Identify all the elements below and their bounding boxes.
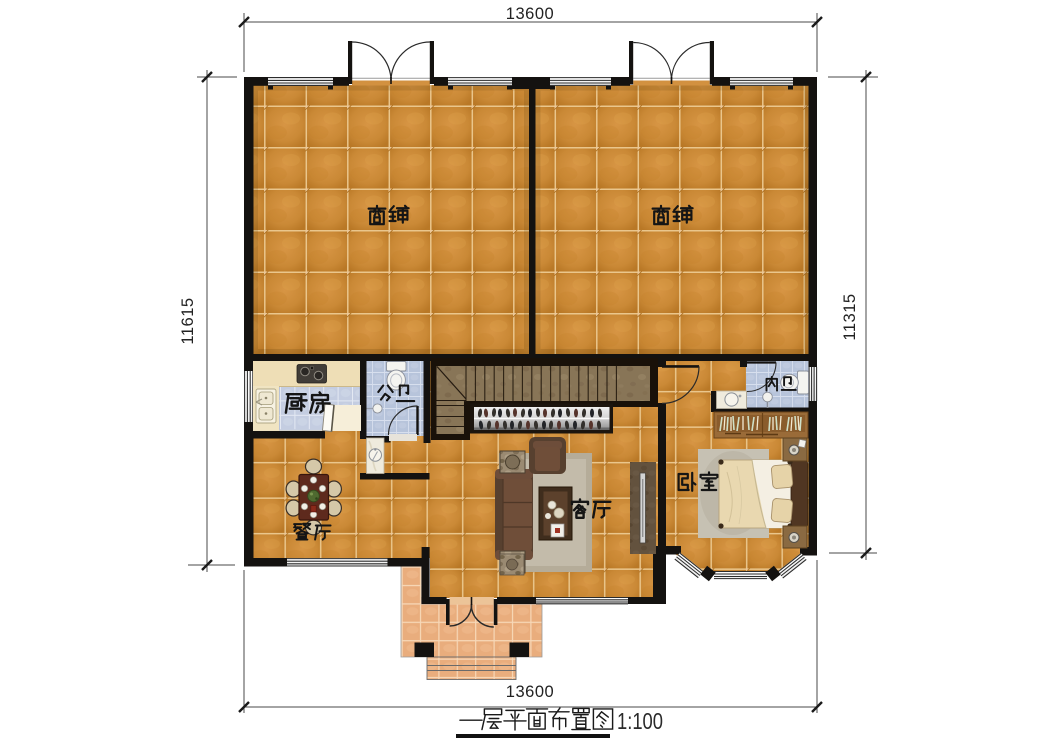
svg-text:1:100: 1:100 — [617, 708, 663, 734]
svg-text:13600: 13600 — [506, 683, 554, 701]
svg-text:13600: 13600 — [506, 5, 554, 23]
svg-text:11615: 11615 — [179, 297, 197, 344]
svg-text:11315: 11315 — [841, 293, 859, 340]
